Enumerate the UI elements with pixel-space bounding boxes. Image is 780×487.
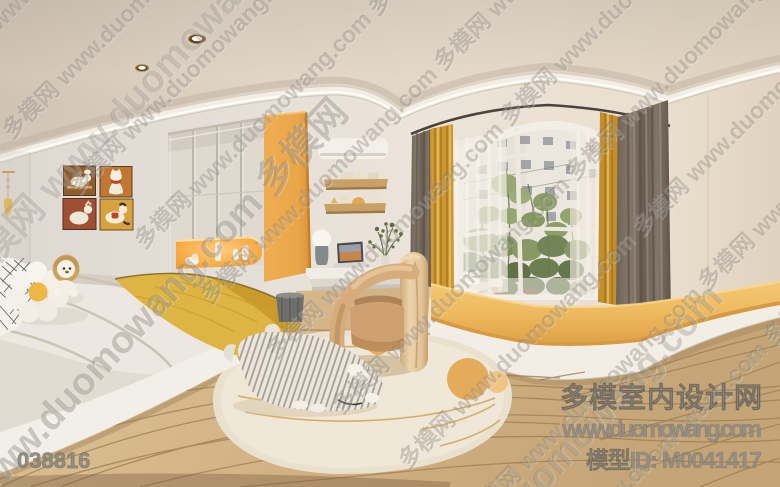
svg-text:www.duomowang.com: www.duomowang.com (561, 416, 762, 443)
svg-text:模型ID: M0041417: 模型ID: M0041417 (586, 447, 762, 473)
svg-text:038816: 038816 (17, 448, 90, 473)
svg-text:多模室内设计网: 多模室内设计网 (560, 381, 762, 413)
